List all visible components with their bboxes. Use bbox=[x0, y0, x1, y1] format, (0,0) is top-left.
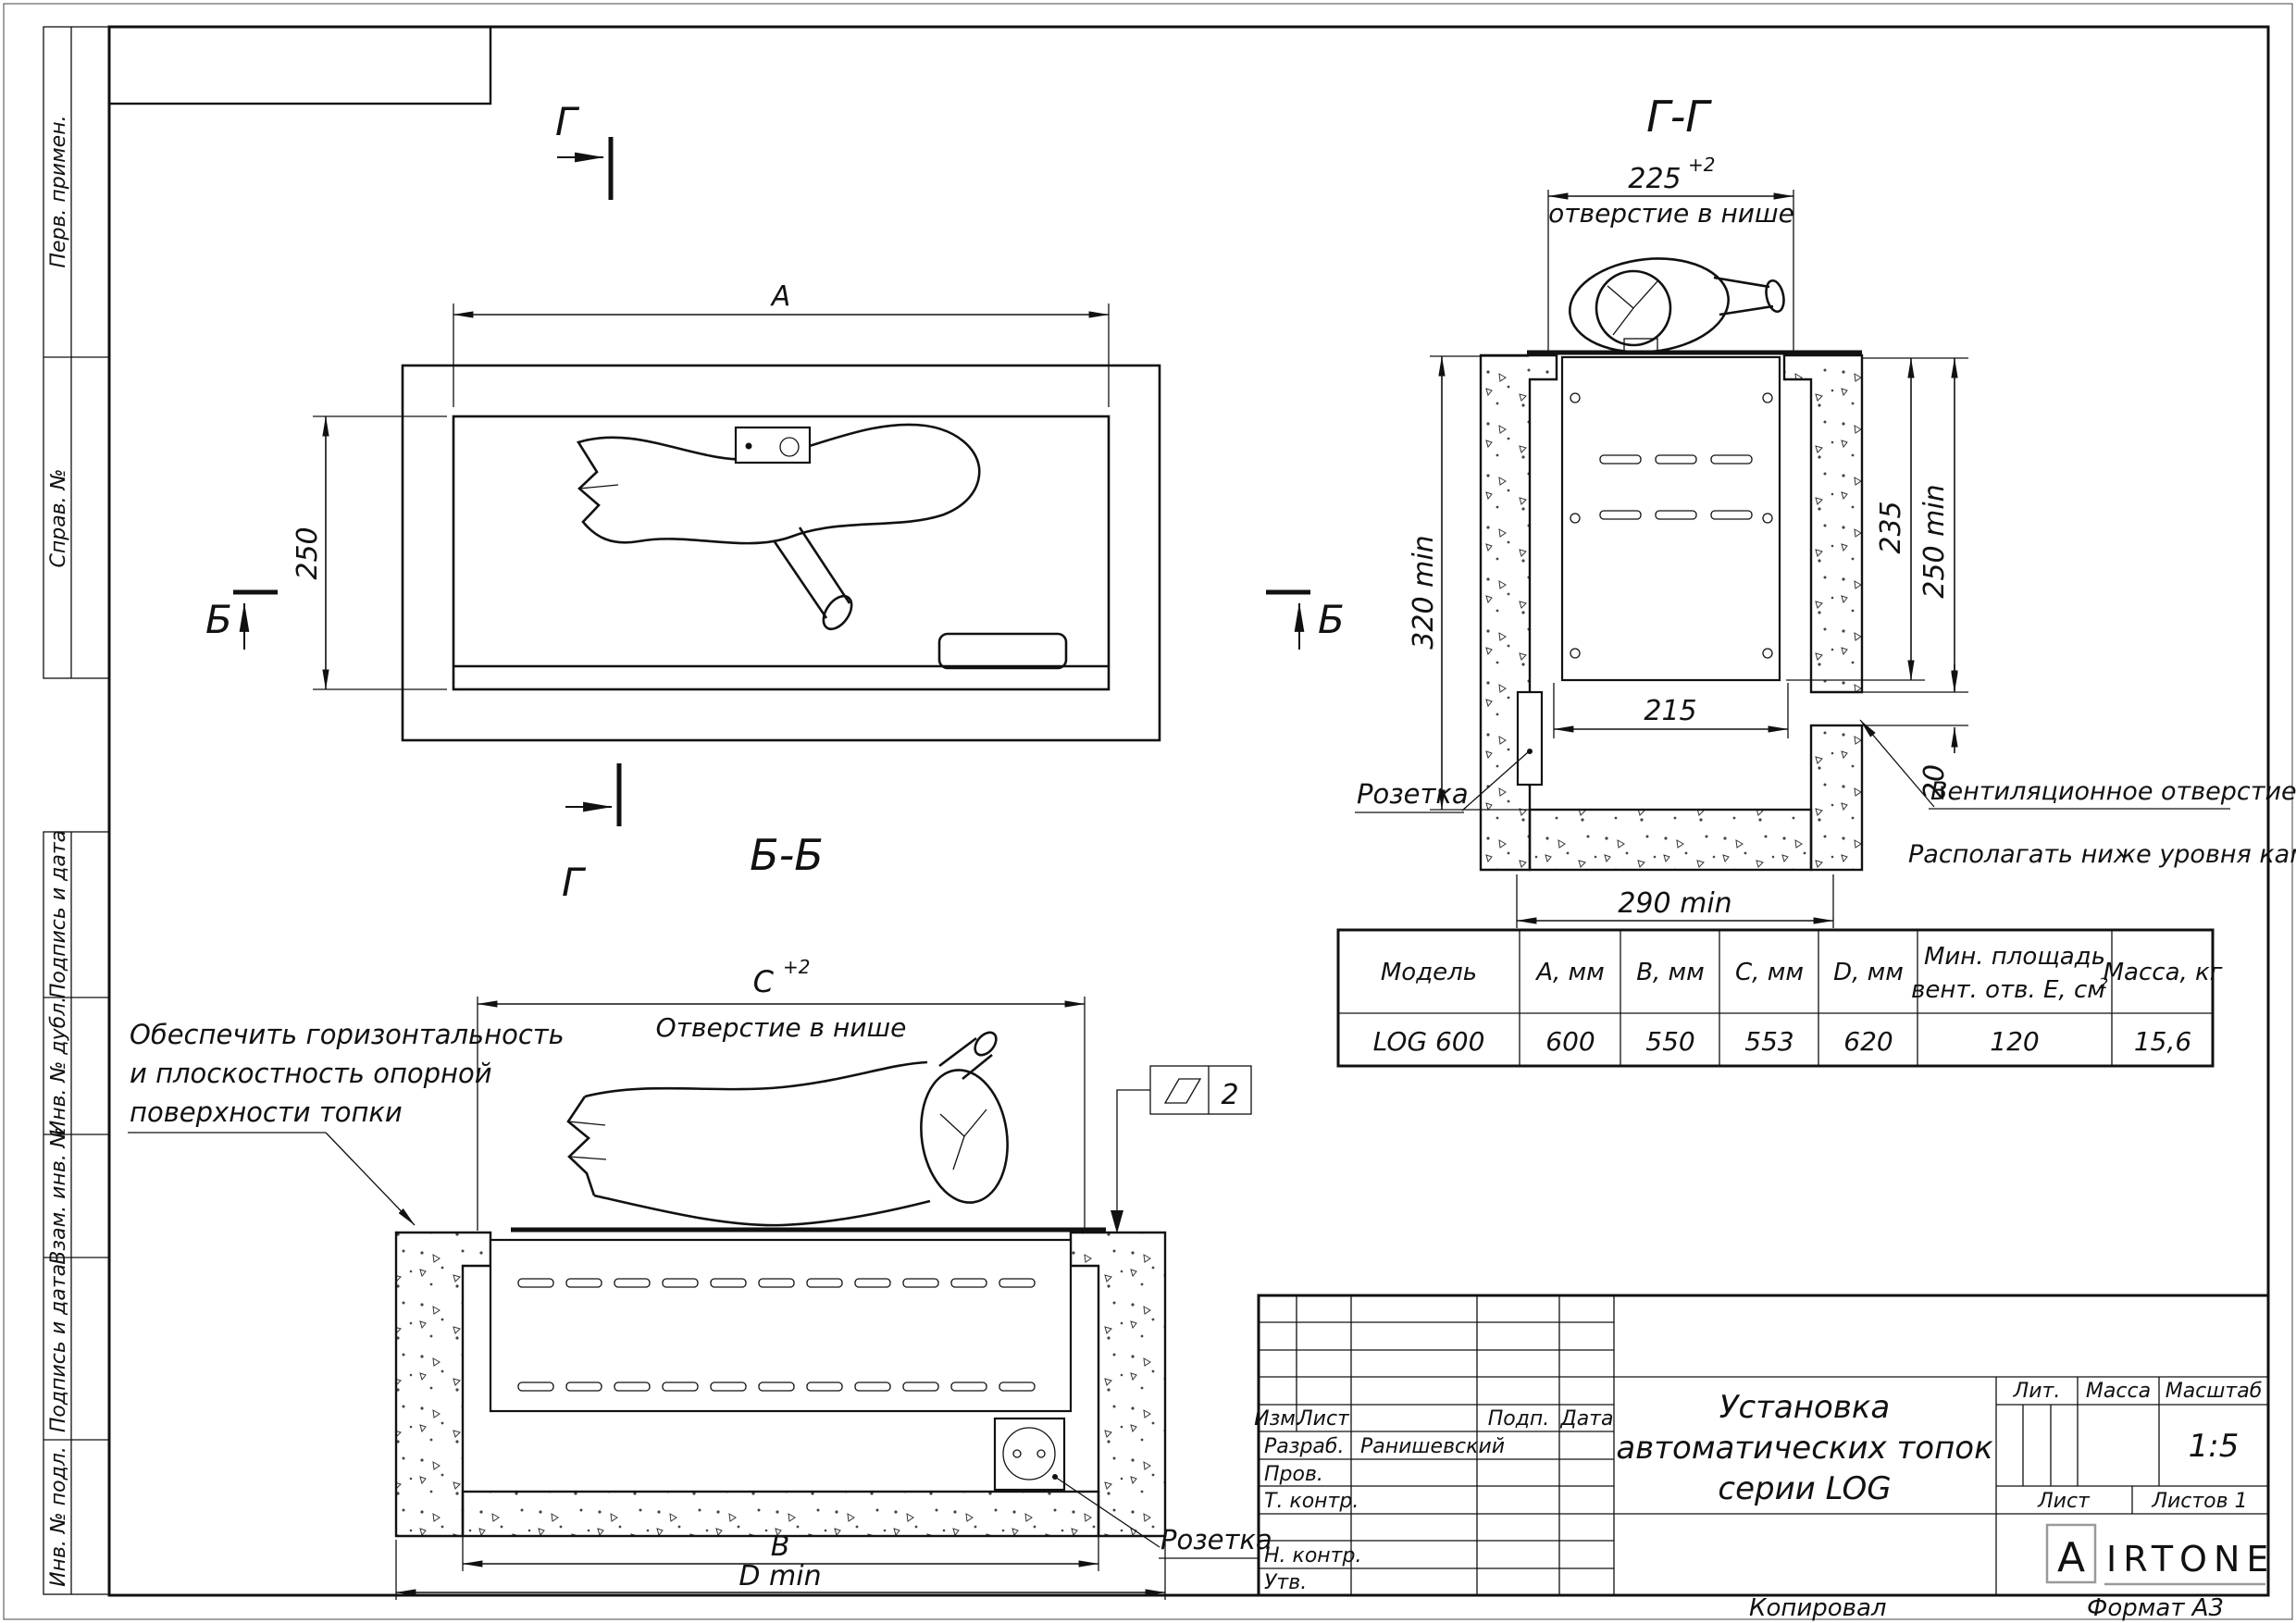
col-header-e-line2: вент. отв. Е, см bbox=[1911, 976, 2105, 1004]
opening-label-bb: Отверстие в нише bbox=[656, 1012, 907, 1043]
cell-c: 553 bbox=[1744, 1026, 1793, 1057]
svg-text:Г: Г bbox=[555, 99, 580, 144]
log-end-view bbox=[1565, 251, 1786, 359]
cell-model: LOG 600 bbox=[1373, 1026, 1485, 1057]
tb-scale-value: 1:5 bbox=[2189, 1428, 2240, 1465]
section-mark-b-right: Б bbox=[1266, 592, 1345, 650]
dim-235-label: 235 bbox=[1875, 501, 1907, 553]
dim-215-label: 215 bbox=[1644, 695, 1696, 727]
left-margin-columns: Перв. примен. Справ. № Подпись и дата Ин… bbox=[43, 27, 109, 1594]
section-gg-title: Г-Г bbox=[1646, 92, 1712, 142]
socket-label-bb: Розетка bbox=[1160, 1524, 1272, 1555]
burner-door bbox=[939, 634, 1066, 668]
cell-a: 600 bbox=[1545, 1026, 1595, 1057]
tb-tkontr: Т. контр. bbox=[1264, 1490, 1359, 1513]
tb-data: Дата bbox=[1560, 1407, 1614, 1431]
tb-razrab: Разраб. bbox=[1264, 1435, 1344, 1458]
doc-title-line2: автоматических топок bbox=[1616, 1430, 1993, 1467]
dim-225-tol: +2 bbox=[1688, 154, 1715, 176]
margin-label: Справ. № bbox=[47, 468, 70, 567]
cell-b: 550 bbox=[1645, 1026, 1694, 1057]
title-block: Изм. Лист Подп. Дата Разраб. Ранишевский… bbox=[1254, 1295, 2275, 1595]
tb-sheets: Листов 1 bbox=[2151, 1490, 2247, 1513]
tb-izm: Изм. bbox=[1254, 1407, 1302, 1431]
margin-label: Подпись и дата bbox=[47, 1264, 70, 1432]
section-gg: Г-Г 225 +2 отверстие в нише bbox=[1355, 92, 2296, 928]
copied-label: Копировал bbox=[1749, 1594, 1887, 1622]
vent-note-line1: Вентиляционное отверстие Е bbox=[1930, 777, 2296, 806]
col-header-model: Модель bbox=[1381, 959, 1477, 986]
footer: Копировал Формат А3 bbox=[1749, 1594, 2224, 1622]
vent-note-line2: Располагать ниже уровня камина bbox=[1908, 840, 2296, 869]
col-header-a: А, мм bbox=[1534, 959, 1605, 986]
margin-label: Взам. инв. № bbox=[47, 1126, 70, 1264]
svg-text:Б: Б bbox=[1318, 597, 1345, 642]
tb-list: Лист bbox=[1297, 1407, 1350, 1431]
col-header-b: В, мм bbox=[1636, 959, 1705, 986]
log-top-view bbox=[578, 425, 979, 634]
tb-utv: Утв. bbox=[1264, 1571, 1307, 1594]
note-line2: и плоскостность опорной bbox=[130, 1058, 492, 1089]
dim-d-label: D min bbox=[738, 1560, 821, 1592]
log-side-view bbox=[568, 1028, 1016, 1225]
tb-razrab-name: Ранишевский bbox=[1360, 1435, 1505, 1458]
col-header-mass: Масса, кг bbox=[2104, 959, 2223, 986]
margin-label: Инв. № подл. bbox=[47, 1446, 70, 1587]
section-mark-g-bottom: Г bbox=[562, 763, 619, 905]
dim-a-label: А bbox=[770, 280, 791, 313]
margin-label: Перв. примен. bbox=[47, 115, 70, 267]
note-line1: Обеспечить горизонтальность bbox=[130, 1019, 565, 1050]
format-label: Формат А3 bbox=[2087, 1594, 2224, 1622]
cell-e: 120 bbox=[1990, 1026, 2039, 1057]
drawing-canvas: Перв. примен. Справ. № Подпись и дата Ин… bbox=[0, 0, 2296, 1623]
logo-letter-a: A bbox=[2057, 1534, 2085, 1581]
svg-text:Г: Г bbox=[562, 860, 587, 905]
col-header-e-line1: Мин. площадь bbox=[1924, 943, 2105, 971]
table-row: LOG 600 600 550 553 620 120 15,6 bbox=[1373, 1026, 2192, 1057]
opening-label: отверстие в нише bbox=[1548, 198, 1794, 229]
cell-d: 620 bbox=[1843, 1026, 1893, 1057]
svg-text:Б: Б bbox=[205, 597, 232, 642]
flatness-value: 2 bbox=[1221, 1079, 1238, 1111]
dim-250-label: 250 bbox=[292, 527, 324, 579]
dim-c-tol: +2 bbox=[783, 956, 810, 978]
tb-masshtab: Масштаб bbox=[2166, 1380, 2263, 1403]
section-bb: Б-Б Обеспечить горизонтальность и плоско… bbox=[128, 830, 1272, 1600]
tb-lit: Лит. bbox=[2013, 1380, 2061, 1403]
doc-title-line3: серии LOG bbox=[1718, 1470, 1891, 1507]
tb-podp: Подп. bbox=[1488, 1407, 1550, 1431]
tb-massa: Масса bbox=[2086, 1380, 2151, 1403]
tb-nkontr: Н. контр. bbox=[1264, 1544, 1361, 1567]
socket-symbol-bb bbox=[995, 1419, 1064, 1490]
airtone-logo: A IRTONE bbox=[2047, 1525, 2275, 1584]
flatness-tolerance-flag: 2 bbox=[1111, 1066, 1251, 1233]
dim-320-label: 320 min bbox=[1408, 535, 1440, 649]
dim-225-label: 225 bbox=[1628, 163, 1681, 195]
col-header-c: С, мм bbox=[1735, 959, 1804, 986]
col-header-d: D, мм bbox=[1833, 959, 1904, 986]
section-bb-title: Б-Б bbox=[750, 830, 824, 880]
socket-label-gg: Розетка bbox=[1357, 778, 1469, 810]
firebox-gg bbox=[1562, 357, 1780, 680]
margin-label: Инв. № дубл. bbox=[47, 997, 70, 1136]
doc-title-line1: Установка bbox=[1719, 1389, 1891, 1426]
section-mark-g-top: Г bbox=[555, 99, 611, 200]
dim-c-label: С bbox=[753, 964, 775, 999]
note-line3: поверхности топки bbox=[130, 1096, 403, 1128]
designation-box bbox=[109, 27, 490, 104]
section-mark-b-left: Б bbox=[205, 592, 278, 650]
socket-symbol-gg bbox=[1518, 692, 1542, 785]
margin-label: Подпись и дата bbox=[47, 830, 70, 998]
dim-290-label: 290 min bbox=[1618, 887, 1731, 920]
firebox-bb bbox=[490, 1240, 1071, 1411]
logo-letters-irtone: IRTONE bbox=[2106, 1539, 2275, 1580]
plan-view: А 250 Г Г Б Б bbox=[205, 99, 1345, 905]
cell-mass: 15,6 bbox=[2134, 1026, 2191, 1057]
flatness-icon bbox=[1165, 1079, 1200, 1103]
spec-table: Модель А, мм В, мм С, мм D, мм Мин. площ… bbox=[1338, 930, 2223, 1066]
tb-sheet: Лист bbox=[2037, 1490, 2091, 1513]
drawing-sheet: Перв. примен. Справ. № Подпись и дата Ин… bbox=[0, 0, 2296, 1623]
dim-250min-label: 250 min bbox=[1918, 484, 1951, 598]
dim-b-label: В bbox=[771, 1530, 790, 1563]
tb-prov: Пров. bbox=[1264, 1463, 1323, 1486]
